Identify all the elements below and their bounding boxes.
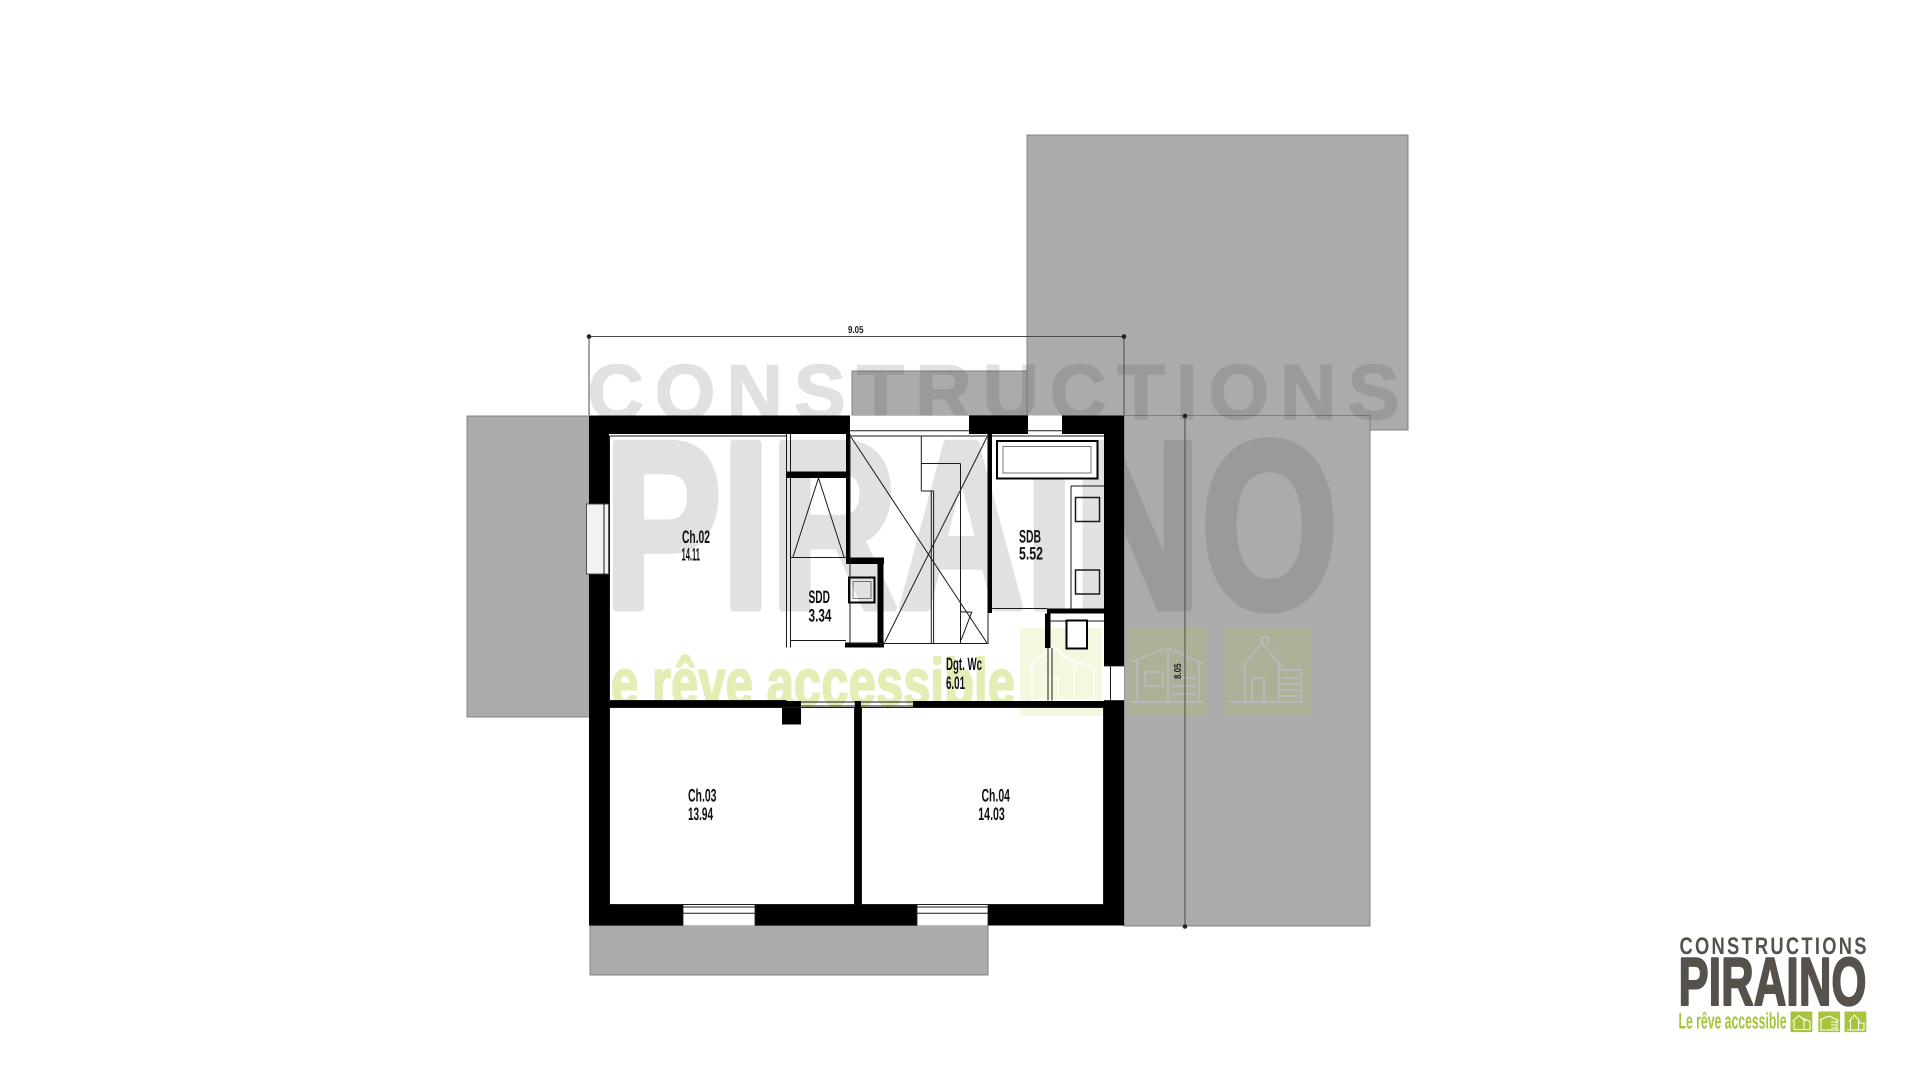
svg-text:Dgt. Wc: Dgt. Wc: [946, 654, 982, 674]
svg-text:Ch.03: Ch.03: [688, 786, 717, 806]
svg-text:Ch.04: Ch.04: [982, 786, 1011, 806]
svg-text:8.05: 8.05: [1173, 663, 1184, 679]
svg-text:3.34: 3.34: [809, 606, 832, 626]
svg-text:5.52: 5.52: [1019, 544, 1043, 564]
svg-text:Le rêve accessible: Le rêve accessible: [1679, 1009, 1787, 1034]
svg-text:13.94: 13.94: [688, 804, 713, 824]
svg-text:14.03: 14.03: [978, 804, 1005, 824]
svg-text:14.11: 14.11: [682, 545, 701, 565]
svg-text:SDD: SDD: [809, 587, 831, 607]
svg-text:9.05: 9.05: [848, 325, 864, 336]
svg-text:6.01: 6.01: [946, 673, 965, 693]
